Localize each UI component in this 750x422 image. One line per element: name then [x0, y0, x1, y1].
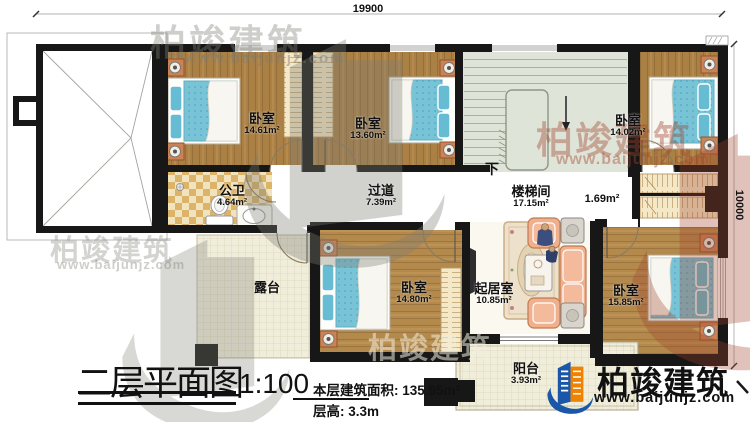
room-label-bedroom-bottom-middle: 卧室 14.80m² [396, 281, 431, 305]
dimension-top: 19900 [353, 3, 384, 15]
room-label-bedroom-top-left: 卧室 14.61m² [244, 112, 279, 136]
room-label-closet-nook: 1.69m² [585, 193, 620, 205]
floor-plan: 19900 10000 卧室 14.61m² 卧室 13.60m² 卧室 14.… [0, 0, 750, 422]
floor-drain [177, 184, 184, 191]
sheet-title: 二层平面图 [77, 355, 242, 406]
dimension-right: 10000 [733, 190, 745, 221]
room-label-bathroom: 公卫 4.64m² [217, 184, 247, 208]
room-label-living-room: 起居室 10.85m² [474, 282, 513, 306]
room-label-balcony: 阳台 3.93m² [511, 362, 541, 386]
wardrobe-bedroom-bottom-middle [441, 268, 461, 352]
room-label-bedroom-bottom-right: 卧室 15.85m² [608, 284, 643, 308]
roof-area [7, 33, 167, 240]
room-label-hallway: 过道 7.39m² [366, 184, 396, 208]
stair-direction-label: 下 [485, 159, 499, 179]
sheet-scale: 1:100 [239, 368, 309, 400]
company-website: www.baijunjz.com [594, 390, 735, 406]
title-underline [78, 402, 236, 405]
floor-area-text: 本层建筑面积: 135.95m² [313, 379, 460, 399]
logo-stroke [737, 381, 748, 393]
room-label-terrace: 露台 [254, 281, 280, 295]
floor-height-text: 层高: 3.3m [313, 400, 379, 420]
room-label-bedroom-top-right: 卧室 14.02m² [610, 114, 645, 138]
room-label-stairwell: 楼梯间 17.15m² [511, 185, 550, 209]
title-underline [78, 391, 236, 394]
room-label-bedroom-top-middle: 卧室 13.60m² [350, 117, 385, 141]
